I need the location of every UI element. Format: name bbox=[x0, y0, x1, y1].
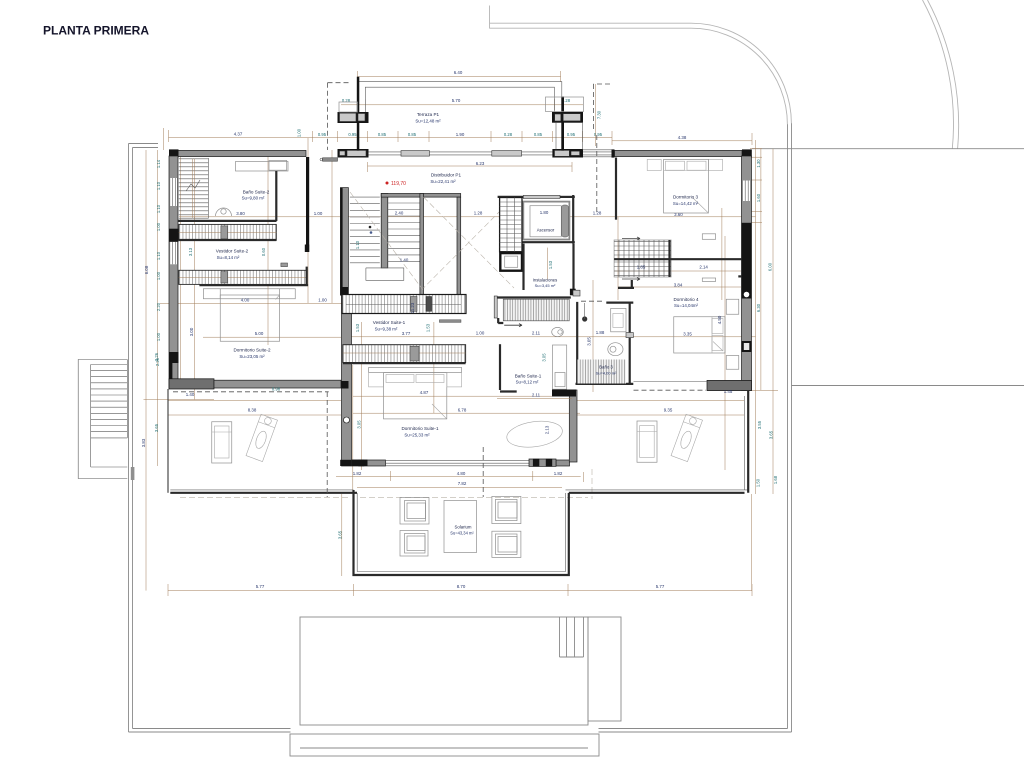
svg-text:Su=25,33 m²: Su=25,33 m² bbox=[404, 433, 430, 438]
svg-text:1.53: 1.53 bbox=[426, 323, 431, 332]
svg-text:3.84: 3.84 bbox=[674, 283, 683, 288]
svg-text:5.77: 5.77 bbox=[256, 584, 265, 589]
svg-text:Su=12,48 m²: Su=12,48 m² bbox=[415, 119, 441, 124]
svg-text:Dormitorio Suite-1: Dormitorio Suite-1 bbox=[401, 426, 438, 431]
svg-text:Su=8,12 m²: Su=8,12 m² bbox=[516, 380, 539, 385]
svg-text:1.28: 1.28 bbox=[474, 211, 483, 216]
svg-text:Instalaciones: Instalaciones bbox=[533, 278, 557, 283]
svg-text:119,70: 119,70 bbox=[391, 181, 406, 187]
svg-text:1.00: 1.00 bbox=[156, 271, 161, 280]
svg-text:2.40: 2.40 bbox=[395, 211, 404, 216]
svg-text:0.98: 0.98 bbox=[272, 387, 281, 392]
svg-text:Terraza P1: Terraza P1 bbox=[417, 112, 440, 117]
svg-text:Su=9,80 m²: Su=9,80 m² bbox=[242, 196, 265, 201]
svg-text:2.26: 2.26 bbox=[154, 352, 159, 361]
svg-text:3.80: 3.80 bbox=[236, 211, 245, 216]
svg-text:0.60: 0.60 bbox=[261, 247, 266, 256]
svg-text:Dormitorio Suite-2: Dormitorio Suite-2 bbox=[233, 348, 270, 353]
svg-text:Su=9,38 m²: Su=9,38 m² bbox=[375, 327, 398, 332]
svg-text:1.14: 1.14 bbox=[156, 159, 161, 168]
svg-text:2.11: 2.11 bbox=[532, 330, 541, 335]
svg-text:11.23: 11.23 bbox=[410, 302, 415, 313]
svg-text:7.30: 7.30 bbox=[597, 110, 602, 119]
svg-text:0.95: 0.95 bbox=[318, 132, 327, 137]
svg-text:4.50: 4.50 bbox=[717, 315, 722, 324]
svg-text:2.11: 2.11 bbox=[532, 392, 541, 397]
svg-text:0.85: 0.85 bbox=[534, 132, 543, 137]
svg-text:Su=23,05 m²: Su=23,05 m² bbox=[239, 354, 265, 359]
svg-text:2.13: 2.13 bbox=[545, 425, 550, 434]
svg-text:3.65: 3.65 bbox=[154, 423, 159, 432]
svg-text:3.83: 3.83 bbox=[141, 438, 146, 447]
svg-text:3.60: 3.60 bbox=[674, 212, 683, 217]
svg-text:6.78: 6.78 bbox=[458, 408, 467, 413]
svg-text:1.85: 1.85 bbox=[637, 264, 646, 269]
svg-text:Su=3,45 m²: Su=3,45 m² bbox=[535, 283, 556, 288]
svg-text:Solarium: Solarium bbox=[455, 525, 472, 530]
svg-text:1.00: 1.00 bbox=[156, 332, 161, 341]
svg-text:1.53: 1.53 bbox=[355, 323, 360, 332]
svg-text:3.77: 3.77 bbox=[402, 331, 411, 336]
svg-text:1.00: 1.00 bbox=[156, 222, 161, 231]
svg-text:8.70: 8.70 bbox=[457, 584, 466, 589]
svg-text:6.08: 6.08 bbox=[144, 265, 149, 274]
svg-text:0.28: 0.28 bbox=[504, 132, 513, 137]
svg-text:5.00: 5.00 bbox=[255, 331, 264, 336]
svg-text:1.28: 1.28 bbox=[593, 211, 602, 216]
svg-text:1.90: 1.90 bbox=[456, 132, 465, 137]
svg-text:0.85: 0.85 bbox=[408, 132, 417, 137]
svg-text:4.80: 4.80 bbox=[457, 471, 466, 476]
svg-text:9.35: 9.35 bbox=[664, 408, 673, 413]
svg-text:0.95: 0.95 bbox=[348, 132, 357, 137]
svg-text:4.37: 4.37 bbox=[234, 132, 243, 137]
svg-text:Baño 3: Baño 3 bbox=[599, 365, 613, 370]
svg-text:Vestidor Suite-1: Vestidor Suite-1 bbox=[373, 320, 406, 325]
svg-text:1.00: 1.00 bbox=[314, 211, 323, 216]
svg-text:Ascensor: Ascensor bbox=[537, 228, 555, 233]
svg-text:1.50: 1.50 bbox=[756, 478, 761, 487]
svg-text:Dormitorio 3: Dormitorio 3 bbox=[673, 195, 698, 200]
svg-text:6.30: 6.30 bbox=[756, 303, 761, 312]
svg-text:5.70: 5.70 bbox=[452, 98, 461, 103]
svg-text:4.00: 4.00 bbox=[241, 298, 250, 303]
svg-text:6.40: 6.40 bbox=[454, 70, 463, 75]
svg-text:Vestidor Suite-2: Vestidor Suite-2 bbox=[216, 249, 249, 254]
svg-text:3.05: 3.05 bbox=[357, 420, 362, 429]
svg-text:1.53: 1.53 bbox=[548, 260, 553, 269]
svg-text:1.10: 1.10 bbox=[156, 181, 161, 190]
svg-text:3.05: 3.05 bbox=[542, 353, 547, 362]
svg-text:Su=14,42 m²: Su=14,42 m² bbox=[673, 201, 699, 206]
svg-text:1.10: 1.10 bbox=[355, 240, 360, 249]
svg-text:1.60: 1.60 bbox=[756, 193, 761, 202]
svg-text:Dormitorio 4: Dormitorio 4 bbox=[673, 297, 698, 302]
svg-text:2.14: 2.14 bbox=[699, 264, 708, 269]
svg-text:1.00: 1.00 bbox=[297, 128, 302, 137]
svg-text:5.77: 5.77 bbox=[656, 584, 665, 589]
svg-text:3.65: 3.65 bbox=[338, 530, 343, 539]
svg-text:0.95: 0.95 bbox=[594, 132, 603, 137]
svg-text:7.82: 7.82 bbox=[458, 481, 467, 486]
svg-text:1.82: 1.82 bbox=[353, 471, 362, 476]
svg-text:3.05: 3.05 bbox=[587, 337, 592, 346]
svg-text:1.82: 1.82 bbox=[554, 471, 563, 476]
svg-text:0.95: 0.95 bbox=[567, 132, 576, 137]
svg-text:1.45: 1.45 bbox=[724, 389, 733, 394]
svg-text:1.10: 1.10 bbox=[156, 251, 161, 260]
svg-text:1.68: 1.68 bbox=[773, 475, 778, 484]
svg-text:Su=8,14 m²: Su=8,14 m² bbox=[217, 255, 240, 260]
svg-text:1.80: 1.80 bbox=[540, 210, 549, 215]
svg-text:6.00: 6.00 bbox=[768, 262, 773, 271]
svg-text:Su=22,41 m²: Su=22,41 m² bbox=[430, 179, 456, 184]
svg-text:0.85: 0.85 bbox=[378, 132, 387, 137]
svg-text:4.87: 4.87 bbox=[420, 390, 429, 395]
svg-text:6.23: 6.23 bbox=[476, 161, 485, 166]
svg-text:1.40: 1.40 bbox=[400, 258, 409, 263]
svg-text:1.10: 1.10 bbox=[156, 204, 161, 213]
svg-text:3.35: 3.35 bbox=[683, 331, 692, 336]
svg-text:8.38: 8.38 bbox=[248, 408, 257, 413]
svg-text:Distribuidor P1: Distribuidor P1 bbox=[431, 173, 462, 178]
svg-text:1.30: 1.30 bbox=[756, 159, 761, 168]
svg-text:Su=14,04m²: Su=14,04m² bbox=[674, 303, 699, 308]
svg-text:1.40: 1.40 bbox=[186, 392, 195, 397]
svg-text:1.88: 1.88 bbox=[596, 330, 605, 335]
svg-text:3.00: 3.00 bbox=[189, 327, 194, 336]
svg-text:2.20: 2.20 bbox=[156, 302, 161, 311]
svg-text:Su=4,00 m²: Su=4,00 m² bbox=[596, 371, 617, 376]
svg-text:PLANTA PRIMERA: PLANTA PRIMERA bbox=[43, 24, 149, 38]
svg-text:Baño Suite-1: Baño Suite-1 bbox=[515, 374, 542, 379]
svg-text:3.13: 3.13 bbox=[188, 247, 193, 256]
svg-text:Baño Suite-2: Baño Suite-2 bbox=[243, 190, 270, 195]
svg-text:Su=43,34 m²: Su=43,34 m² bbox=[450, 531, 474, 536]
svg-text:3.65: 3.65 bbox=[769, 430, 774, 439]
svg-text:3.55: 3.55 bbox=[757, 420, 762, 429]
svg-text:1.00: 1.00 bbox=[476, 330, 485, 335]
svg-text:4.38: 4.38 bbox=[678, 135, 687, 140]
svg-text:1.00: 1.00 bbox=[318, 298, 327, 303]
